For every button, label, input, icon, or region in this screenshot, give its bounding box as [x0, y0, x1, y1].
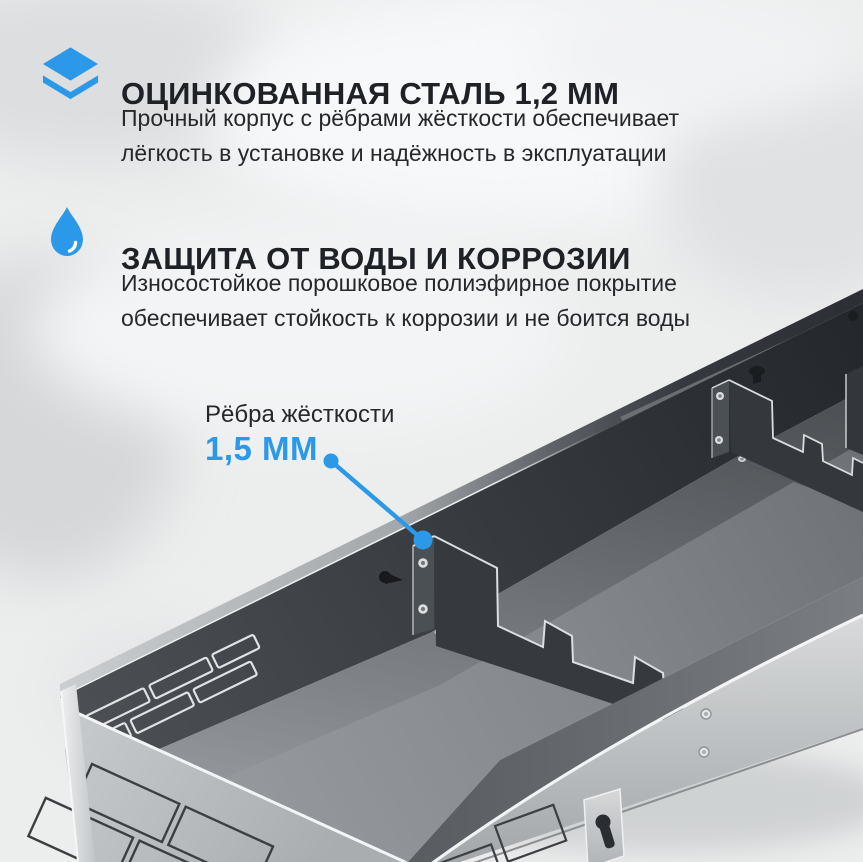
callout-label: Рёбра жёсткости — [205, 401, 394, 429]
layers-icon — [42, 46, 99, 100]
callout-start-dot — [324, 454, 339, 469]
feature-1-body: Прочный корпус с рёбрами жёсткости обесп… — [121, 101, 679, 171]
feature-2-body: Износостойкое порошковое полиэфирное пок… — [121, 266, 690, 336]
feature-2-body-line-1: Износостойкое порошковое полиэфирное пок… — [121, 266, 690, 301]
feature-2-body-line-2: обеспечивает стойкость к коррозии и не б… — [121, 301, 690, 336]
mounting-keyhole-tab — [584, 789, 624, 862]
callout-value: 1,5 ММ — [205, 430, 318, 468]
feature-1-body-line-1: Прочный корпус с рёбрами жёсткости обесп… — [121, 101, 679, 136]
callout-end-dot — [414, 531, 433, 550]
feature-1-body-line-2: лёгкость в установке и надёжность в эксп… — [121, 136, 679, 171]
water-drop-icon — [49, 206, 85, 260]
stiffener-rib-3-partial — [846, 366, 863, 455]
product-infographic: ОЦИНКОВАННАЯ СТАЛЬ 1,2 ММ Прочный корпус… — [0, 0, 863, 862]
